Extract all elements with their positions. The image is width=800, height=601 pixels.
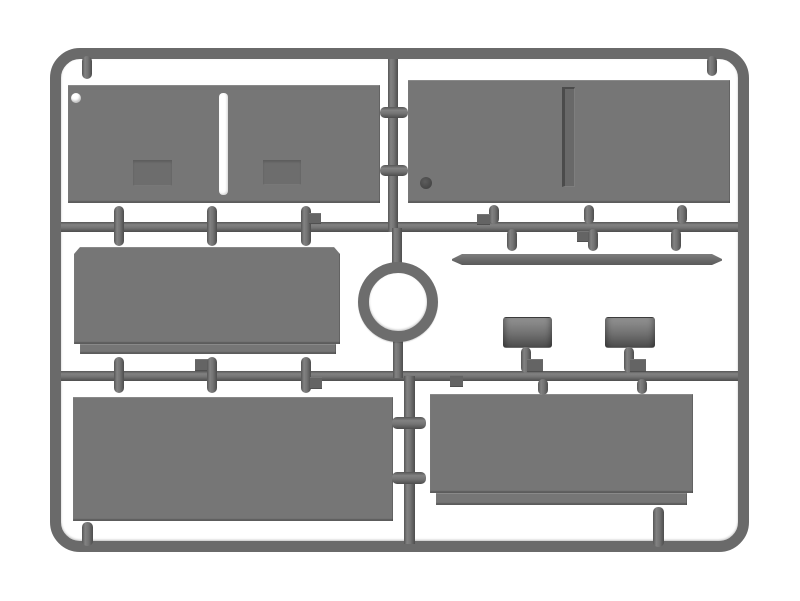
- sprue-gate: [637, 379, 647, 394]
- sprue-gate: [653, 507, 664, 547]
- part-panel-middle-left-step: [80, 344, 336, 354]
- panel-round-hole: [71, 93, 81, 103]
- part-cylinder-right: [605, 317, 655, 348]
- panel-recessed-hatch-left: [133, 160, 172, 186]
- sprue-tab: [630, 359, 646, 372]
- part-panel-bottom-left: [73, 397, 393, 521]
- part-rod: [452, 254, 722, 265]
- sprue-gate: [489, 205, 499, 224]
- sprue-gate: [380, 165, 408, 176]
- sprue-gate: [114, 357, 124, 393]
- sprue-gate: [588, 229, 598, 251]
- part-panel-bottom-right: [430, 394, 693, 493]
- sprue-tab: [310, 377, 322, 389]
- sprue-gate: [82, 56, 92, 79]
- sprue-gate: [671, 229, 681, 251]
- sprue-gate: [82, 522, 93, 546]
- sprue-gate: [392, 417, 426, 429]
- sprue-tab: [477, 214, 490, 225]
- sprue-gate: [707, 56, 717, 76]
- sprue-gate: [677, 205, 687, 224]
- sprue-gate: [538, 379, 548, 395]
- runner-center-top: [388, 59, 398, 232]
- sprue-photo: [0, 0, 800, 601]
- runner-center-bottom: [404, 376, 415, 544]
- sprue-tab: [527, 359, 543, 372]
- part-panel-middle-left: [74, 247, 340, 344]
- part-ring: [358, 262, 438, 342]
- sprue-gate: [507, 229, 517, 251]
- sprue-gate: [301, 206, 311, 246]
- sprue-gate: [207, 357, 217, 393]
- part-panel-top-right: [408, 80, 730, 203]
- part-panel-bottom-right-step: [436, 493, 687, 505]
- sprue-gate: [114, 206, 124, 246]
- sprue-tab: [309, 213, 321, 224]
- panel-recessed-groove: [562, 87, 575, 187]
- sprue-gate: [392, 472, 426, 484]
- sprue-gate: [207, 206, 217, 246]
- panel-recessed-hatch-right: [263, 160, 301, 185]
- panel-round-recess: [420, 177, 432, 189]
- sprue-tab: [450, 375, 463, 387]
- panel-slot-opening: [219, 93, 228, 195]
- sprue-gate: [584, 205, 594, 224]
- part-panel-top-left: [68, 85, 380, 203]
- sprue-gate: [380, 107, 408, 118]
- part-cylinder-left: [503, 317, 552, 348]
- runner-ring-lower: [393, 336, 403, 378]
